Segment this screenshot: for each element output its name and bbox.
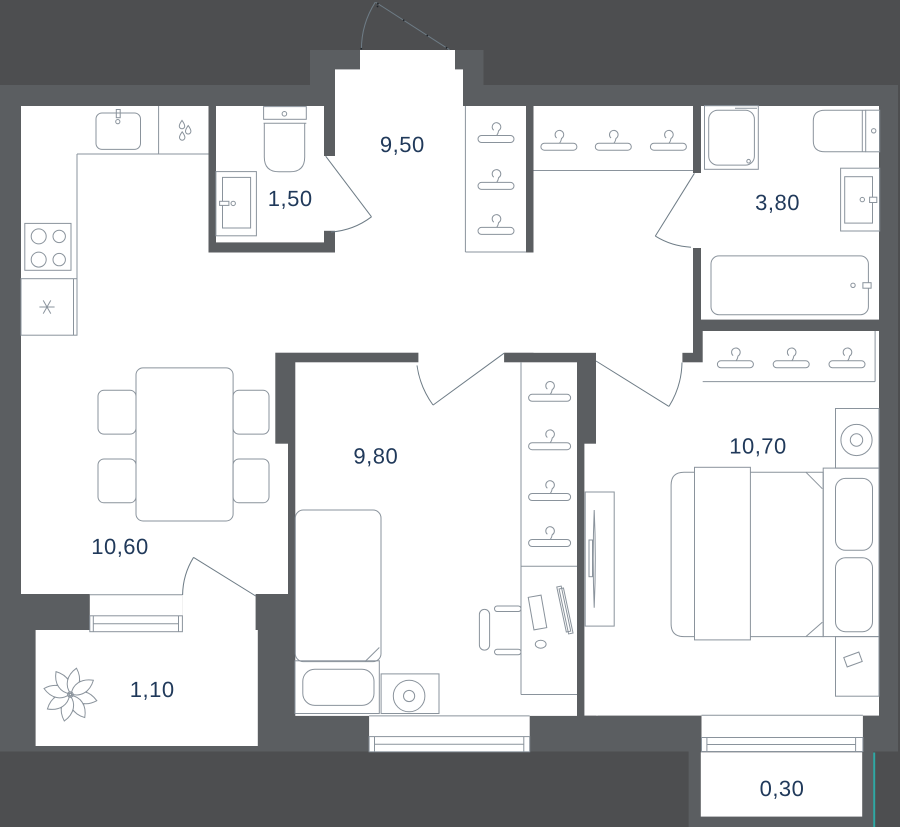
svg-text:9,50: 9,50 xyxy=(380,132,425,157)
svg-text:1,50: 1,50 xyxy=(268,186,313,211)
svg-text:1,10: 1,10 xyxy=(130,677,175,702)
svg-text:10,70: 10,70 xyxy=(729,434,787,459)
svg-text:3,80: 3,80 xyxy=(755,190,800,215)
svg-text:9,80: 9,80 xyxy=(353,443,398,468)
svg-text:10,60: 10,60 xyxy=(91,534,149,559)
svg-text:0,30: 0,30 xyxy=(760,776,805,801)
